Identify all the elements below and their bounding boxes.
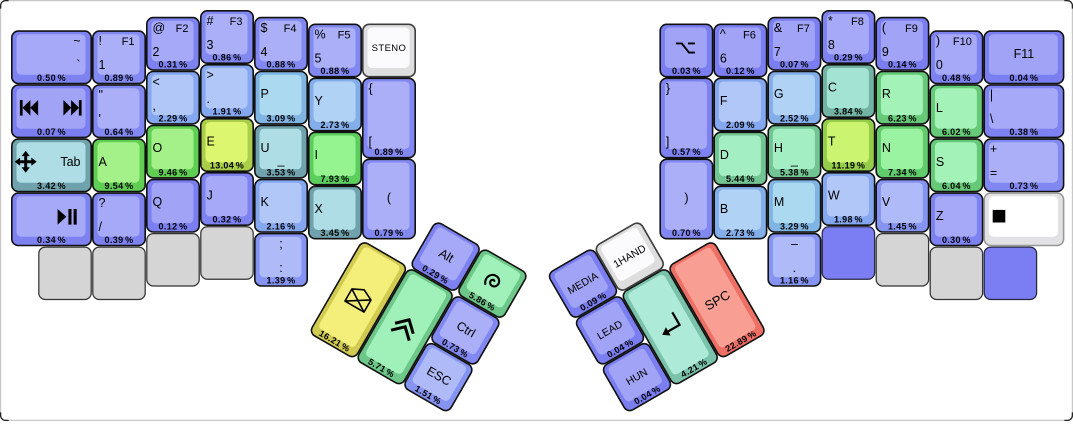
svg-text:Y: Y: [315, 94, 324, 108]
svg-text:+: +: [990, 142, 997, 156]
svg-text:E: E: [207, 135, 215, 149]
svg-text:3.45%: 3.45%: [321, 228, 350, 238]
svg-text:=: =: [990, 166, 997, 180]
svg-text:0.14%: 0.14%: [888, 59, 917, 69]
svg-text:F4: F4: [284, 23, 297, 35]
svg-text:0.70%: 0.70%: [672, 228, 701, 238]
svg-text:X: X: [315, 202, 324, 216]
svg-text:3.09%: 3.09%: [267, 113, 296, 123]
svg-text:1.45%: 1.45%: [888, 221, 917, 231]
svg-text:': ': [99, 112, 101, 126]
svg-text:V: V: [882, 195, 891, 209]
svg-text:7.34%: 7.34%: [888, 167, 917, 177]
svg-text:}: }: [666, 82, 670, 96]
svg-text:0.73%: 0.73%: [1009, 181, 1038, 191]
svg-text:2: 2: [153, 45, 160, 59]
svg-text:7: 7: [774, 45, 781, 59]
svg-text:T: T: [828, 135, 836, 149]
svg-text:3: 3: [207, 38, 214, 52]
svg-text:F11: F11: [1014, 47, 1035, 61]
svg-text:%: %: [315, 28, 326, 42]
svg-text:2.29%: 2.29%: [159, 113, 188, 123]
svg-text:–: –: [791, 237, 798, 251]
svg-text:0.12%: 0.12%: [726, 66, 755, 76]
svg-text:K: K: [261, 195, 270, 209]
svg-text:R: R: [882, 87, 891, 101]
svg-text:13.04%: 13.04%: [210, 161, 244, 171]
svg-text:0.38%: 0.38%: [1009, 127, 1038, 137]
svg-text:I: I: [315, 148, 318, 162]
svg-text:0.03%: 0.03%: [672, 66, 701, 76]
svg-text:0.89%: 0.89%: [105, 73, 134, 83]
svg-text:": ": [99, 88, 103, 102]
svg-text:{: {: [369, 82, 373, 96]
svg-text:F8: F8: [851, 16, 864, 28]
svg-text:0.34%: 0.34%: [37, 235, 66, 245]
svg-text:6.04%: 6.04%: [942, 181, 971, 191]
svg-text:0.29%: 0.29%: [834, 53, 863, 63]
svg-text:F2: F2: [176, 23, 189, 35]
svg-text:F3: F3: [230, 16, 243, 28]
svg-text:6.23%: 6.23%: [888, 113, 917, 123]
svg-text:2.52%: 2.52%: [780, 113, 809, 123]
svg-text:L: L: [936, 101, 943, 115]
svg-text:_: _: [790, 153, 799, 167]
svg-text:U: U: [261, 141, 270, 155]
svg-text:2.73%: 2.73%: [321, 120, 350, 130]
svg-text:H: H: [774, 141, 783, 155]
svg-text:1: 1: [99, 58, 106, 72]
svg-text:P: P: [261, 87, 269, 101]
svg-text:F1: F1: [122, 36, 135, 48]
svg-text:0.04%: 0.04%: [1009, 73, 1038, 83]
svg-text:9.46%: 9.46%: [159, 167, 188, 177]
svg-text:6.02%: 6.02%: [942, 127, 971, 137]
svg-text:1.91%: 1.91%: [213, 107, 242, 117]
svg-text:B: B: [720, 202, 728, 216]
svg-text:Q: Q: [153, 195, 163, 209]
svg-text:D: D: [720, 148, 729, 162]
svg-text:0.07%: 0.07%: [780, 59, 809, 69]
svg-text:2.09%: 2.09%: [726, 120, 755, 130]
svg-text:0.86%: 0.86%: [213, 53, 242, 63]
svg-text:F: F: [720, 94, 728, 108]
svg-text:;: ;: [279, 237, 282, 251]
svg-text:N: N: [882, 141, 891, 155]
svg-text:3.84%: 3.84%: [834, 107, 863, 117]
svg-text:!: !: [99, 34, 102, 48]
svg-text:5.44%: 5.44%: [726, 174, 755, 184]
svg-text:0.07%: 0.07%: [37, 127, 66, 137]
svg-text:3.29%: 3.29%: [780, 221, 809, 231]
svg-text:&: &: [774, 21, 783, 35]
svg-text:STENO: STENO: [372, 43, 407, 54]
svg-text:M: M: [774, 195, 784, 209]
svg-text:9: 9: [882, 45, 889, 59]
svg-text:1.98%: 1.98%: [834, 215, 863, 225]
svg-text:@: @: [153, 21, 166, 35]
svg-text:2.73%: 2.73%: [726, 228, 755, 238]
svg-text:_: _: [277, 153, 286, 167]
svg-text:2.16%: 2.16%: [267, 221, 296, 231]
svg-text:`: `: [76, 58, 80, 72]
svg-text:^: ^: [720, 28, 726, 42]
svg-text:F7: F7: [797, 23, 810, 35]
svg-text:0.12%: 0.12%: [159, 221, 188, 231]
svg-text:Z: Z: [936, 209, 944, 223]
svg-text:0: 0: [936, 58, 943, 72]
svg-text:3.53%: 3.53%: [267, 167, 296, 177]
svg-text:1.39%: 1.39%: [267, 275, 296, 285]
svg-text:.: .: [793, 261, 796, 275]
svg-text:): ): [684, 191, 688, 205]
svg-text:W: W: [828, 189, 840, 203]
svg-text:G: G: [774, 87, 784, 101]
svg-text:0.39%: 0.39%: [105, 235, 134, 245]
svg-text:0.48%: 0.48%: [942, 73, 971, 83]
svg-text:3.42%: 3.42%: [37, 181, 66, 191]
svg-text:0.32%: 0.32%: [213, 215, 242, 225]
svg-text:.: .: [207, 92, 210, 106]
svg-text:,: ,: [153, 99, 156, 113]
svg-text:1.16%: 1.16%: [780, 275, 809, 285]
svg-text:5.38%: 5.38%: [780, 167, 809, 177]
svg-text:S: S: [936, 155, 944, 169]
svg-text:?: ?: [99, 196, 106, 210]
svg-text:8: 8: [828, 38, 835, 52]
svg-text:11.19%: 11.19%: [832, 161, 866, 171]
svg-text:0.79%: 0.79%: [375, 228, 404, 238]
svg-text:\: \: [990, 112, 994, 126]
svg-text:]: ]: [666, 135, 669, 149]
svg-text:>: >: [207, 68, 214, 82]
svg-text:4: 4: [261, 45, 268, 59]
svg-text:~: ~: [73, 34, 80, 48]
svg-text:0.88%: 0.88%: [321, 66, 350, 76]
svg-text:0.88%: 0.88%: [267, 59, 296, 69]
svg-text:*: *: [828, 14, 833, 28]
svg-text:0.31%: 0.31%: [159, 59, 188, 69]
svg-text:C: C: [828, 81, 837, 95]
svg-text:5: 5: [315, 52, 322, 66]
svg-text:O: O: [153, 141, 163, 155]
svg-text:[: [: [369, 135, 373, 149]
svg-text:0.89%: 0.89%: [375, 147, 404, 157]
svg-text:F9: F9: [905, 23, 918, 35]
svg-text:0.64%: 0.64%: [105, 127, 134, 137]
svg-text::: :: [279, 261, 282, 275]
svg-text:A: A: [99, 155, 108, 169]
svg-text:/: /: [99, 220, 103, 234]
svg-text:0.57%: 0.57%: [672, 147, 701, 157]
svg-text:9.54%: 9.54%: [105, 181, 134, 191]
svg-text:7.93%: 7.93%: [321, 174, 350, 184]
svg-text:): ): [936, 34, 940, 48]
svg-text:J: J: [207, 189, 213, 203]
svg-text:#: #: [207, 14, 214, 28]
svg-text:0.30%: 0.30%: [942, 235, 971, 245]
svg-text:F10: F10: [953, 36, 972, 48]
svg-text:0.50%: 0.50%: [37, 73, 66, 83]
svg-text:6: 6: [720, 52, 727, 66]
svg-text:|: |: [990, 88, 993, 102]
svg-text:F6: F6: [743, 30, 756, 42]
svg-text:$: $: [261, 21, 268, 35]
svg-text:<: <: [153, 75, 160, 89]
svg-text:Tab: Tab: [60, 155, 80, 169]
svg-text:F5: F5: [338, 30, 351, 42]
